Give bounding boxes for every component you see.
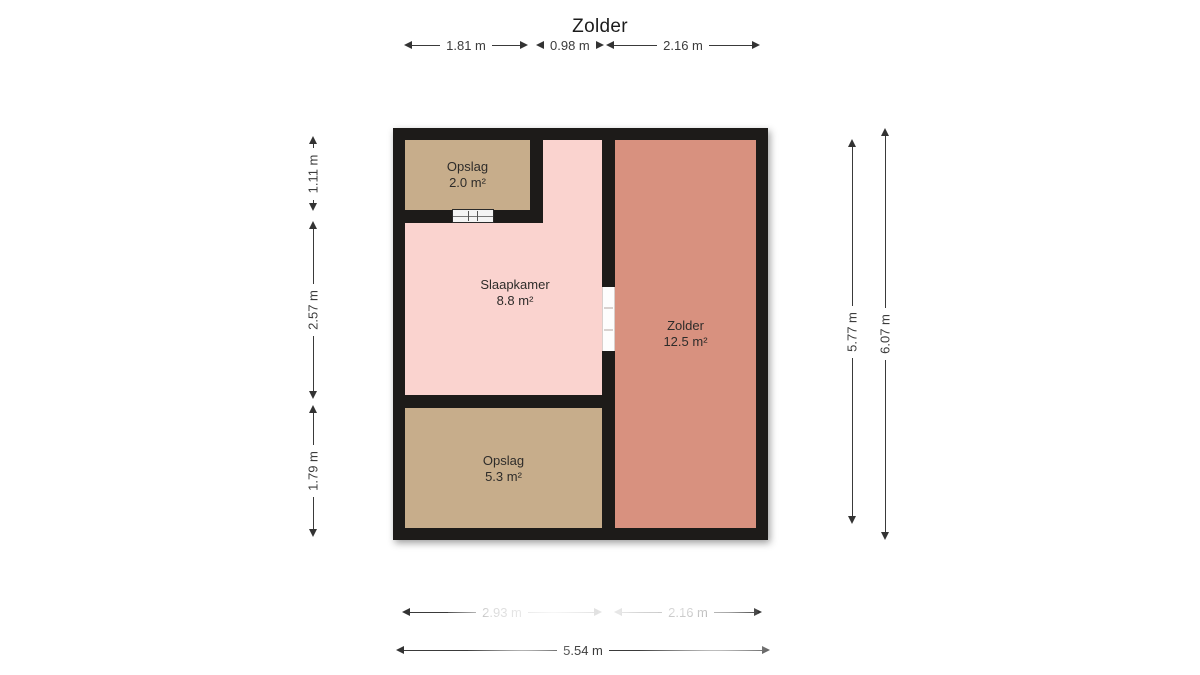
dim-label: 1.11 m <box>305 148 321 200</box>
dim-bottom-2: 2.16 m <box>614 604 762 620</box>
arrow-left-icon <box>404 41 412 49</box>
room-name: Opslag <box>405 159 530 175</box>
dim-line <box>528 612 594 613</box>
room-label-opslag-bottom: Opslag 5.3 m² <box>405 453 602 485</box>
dim-line <box>313 497 314 529</box>
arrow-up-icon <box>309 136 317 144</box>
dim-line <box>313 413 314 445</box>
arrow-up-icon <box>848 139 856 147</box>
room-name: Zolder <box>615 318 756 334</box>
dim-top-1: 1.81 m <box>404 37 528 53</box>
arrow-left-icon <box>402 608 410 616</box>
dim-line <box>404 650 557 651</box>
dim-line <box>885 136 886 308</box>
floorplan: Opslag 2.0 m² Slaapkamer 8.8 m² Zolder 1… <box>393 128 768 540</box>
arrow-down-icon <box>309 391 317 399</box>
dim-line <box>714 612 754 613</box>
room-area: 5.3 m² <box>405 469 602 485</box>
plan-title: Zolder <box>0 16 1200 38</box>
dim-line <box>622 612 662 613</box>
floorplan-page: Zolder 1.81 m 0.98 m 2.16 m 1.11 m 2.57 … <box>0 0 1200 675</box>
arrow-down-icon <box>881 532 889 540</box>
dim-right-outer: 6.07 m <box>877 128 893 540</box>
dim-left-2: 2.57 m <box>305 221 321 399</box>
dim-line <box>313 229 314 284</box>
arrow-right-icon <box>596 41 604 49</box>
dim-line <box>709 45 752 46</box>
arrow-left-icon <box>614 608 622 616</box>
room-name: Slaapkamer <box>433 277 597 293</box>
room-area: 8.8 m² <box>433 293 597 309</box>
dim-right-inner: 5.77 m <box>844 139 860 524</box>
room-label-zolder: Zolder 12.5 m² <box>615 318 756 350</box>
dim-label: 5.77 m <box>844 306 860 358</box>
dim-label: 2.93 m <box>476 605 528 620</box>
room-label-slaapkamer: Slaapkamer 8.8 m² <box>433 277 597 309</box>
arrow-left-icon <box>536 41 544 49</box>
dim-bottom-total: 5.54 m <box>396 642 770 658</box>
dim-label: 2.16 m <box>657 38 709 53</box>
dim-line <box>410 612 476 613</box>
dim-label: 1.79 m <box>305 445 321 497</box>
dim-label: 1.81 m <box>440 38 492 53</box>
arrow-right-icon <box>762 646 770 654</box>
arrow-down-icon <box>309 203 317 211</box>
arrow-up-icon <box>881 128 889 136</box>
arrow-left-icon <box>396 646 404 654</box>
arrow-right-icon <box>752 41 760 49</box>
dim-line <box>614 45 657 46</box>
room-area: 2.0 m² <box>405 175 530 191</box>
dim-bottom-1: 2.93 m <box>402 604 602 620</box>
dim-line <box>852 147 853 306</box>
dim-top-2: 0.98 m <box>536 37 602 53</box>
arrow-down-icon <box>848 516 856 524</box>
dim-line <box>852 358 853 517</box>
dim-left-1: 1.11 m <box>305 136 321 211</box>
dim-line <box>313 336 314 391</box>
arrow-right-icon <box>520 41 528 49</box>
dim-line <box>492 45 520 46</box>
dim-line <box>412 45 440 46</box>
dim-label: 0.98 m <box>544 38 596 53</box>
dim-label: 2.16 m <box>662 605 714 620</box>
room-label-opslag-top: Opslag 2.0 m² <box>405 159 530 191</box>
arrow-up-icon <box>309 405 317 413</box>
room-name: Opslag <box>405 453 602 469</box>
dim-label: 6.07 m <box>877 308 893 360</box>
dim-line <box>885 360 886 532</box>
arrow-right-icon <box>754 608 762 616</box>
arrow-right-icon <box>594 608 602 616</box>
dim-label: 2.57 m <box>305 284 321 336</box>
dim-label: 5.54 m <box>557 643 609 658</box>
arrow-up-icon <box>309 221 317 229</box>
door-icon <box>602 287 615 351</box>
arrow-left-icon <box>606 41 614 49</box>
dim-top-3: 2.16 m <box>606 37 760 53</box>
dim-left-3: 1.79 m <box>305 405 321 537</box>
arrow-down-icon <box>309 529 317 537</box>
dim-line <box>609 650 762 651</box>
window-icon <box>452 209 494 223</box>
room-area: 12.5 m² <box>615 334 756 350</box>
